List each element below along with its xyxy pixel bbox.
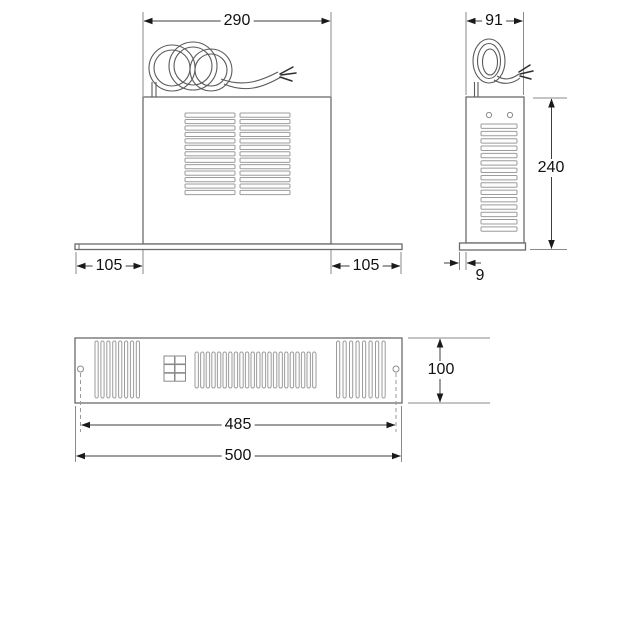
dim-label-290: 290 — [221, 12, 254, 30]
baseplate-edge — [75, 244, 402, 250]
fixing-hole-left — [78, 366, 84, 372]
technical-drawing — [0, 0, 643, 643]
heater-body-front — [143, 97, 331, 244]
stripped-wire-ends-front-icon — [280, 67, 296, 81]
dim-label-240: 240 — [535, 159, 568, 177]
power-cable-coil-front-icon — [149, 42, 281, 97]
fixing-hole-right — [393, 366, 399, 372]
drawing-canvas: 290 105 105 91 240 9 100 485 500 — [0, 0, 643, 643]
dim-label-105-right: 105 — [350, 257, 383, 275]
pilot-hole — [486, 112, 491, 117]
stripped-wire-ends-side-icon — [519, 65, 533, 79]
dim-label-91: 91 — [482, 12, 506, 30]
dim-label-485: 485 — [222, 416, 255, 434]
switch-block — [164, 356, 186, 381]
base-lip-side — [460, 243, 526, 250]
power-cable-coil-side-icon — [473, 39, 520, 97]
side-view — [444, 12, 567, 270]
dim-label-105-left: 105 — [93, 257, 126, 275]
side-vent-grille — [481, 124, 517, 231]
dim-label-500: 500 — [222, 447, 255, 465]
dim-label-100: 100 — [425, 361, 458, 379]
front-view — [75, 12, 402, 274]
dim-label-9: 9 — [473, 267, 488, 285]
pilot-hole — [507, 112, 512, 117]
panel-view — [75, 338, 490, 462]
